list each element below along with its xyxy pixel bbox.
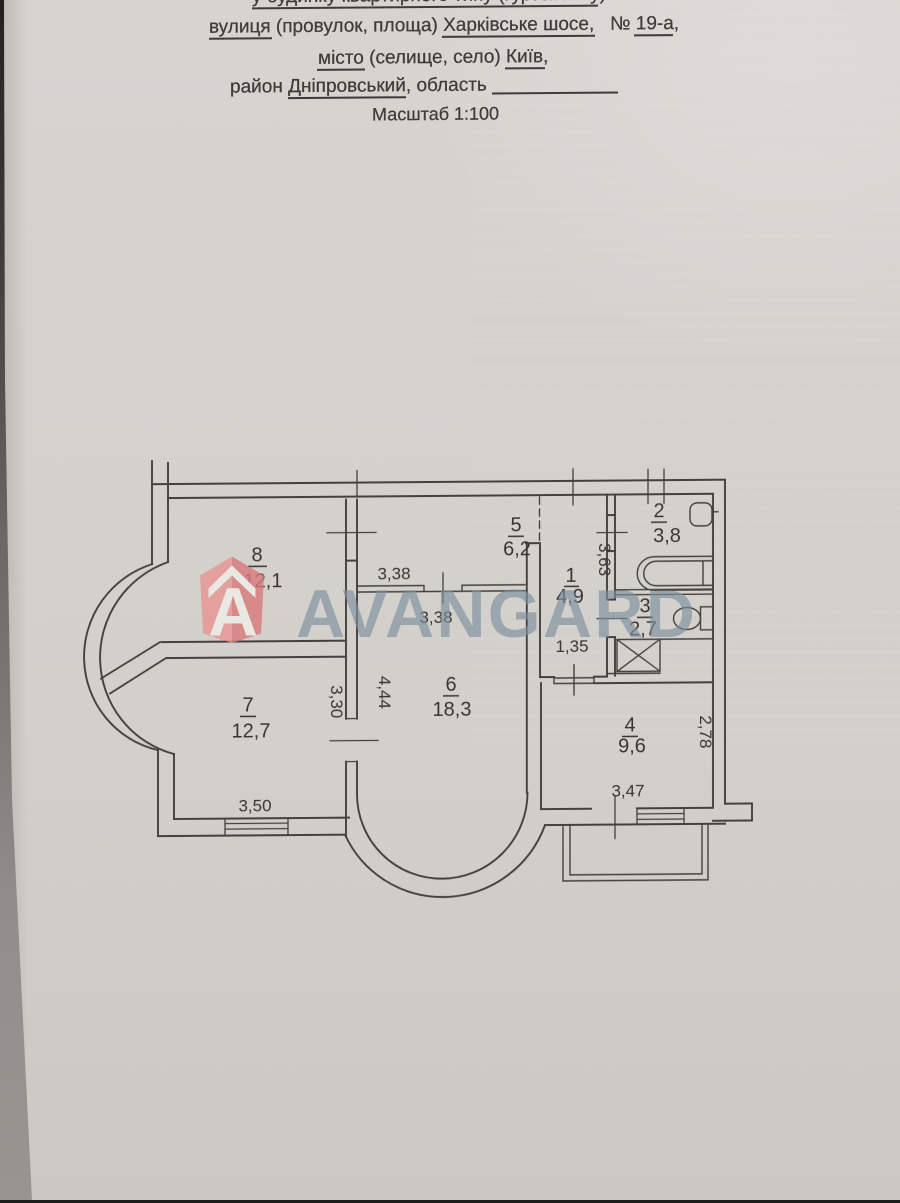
svg-text:A: A: [208, 574, 258, 651]
svg-text:AVANGARD: AVANGARD: [296, 576, 697, 652]
